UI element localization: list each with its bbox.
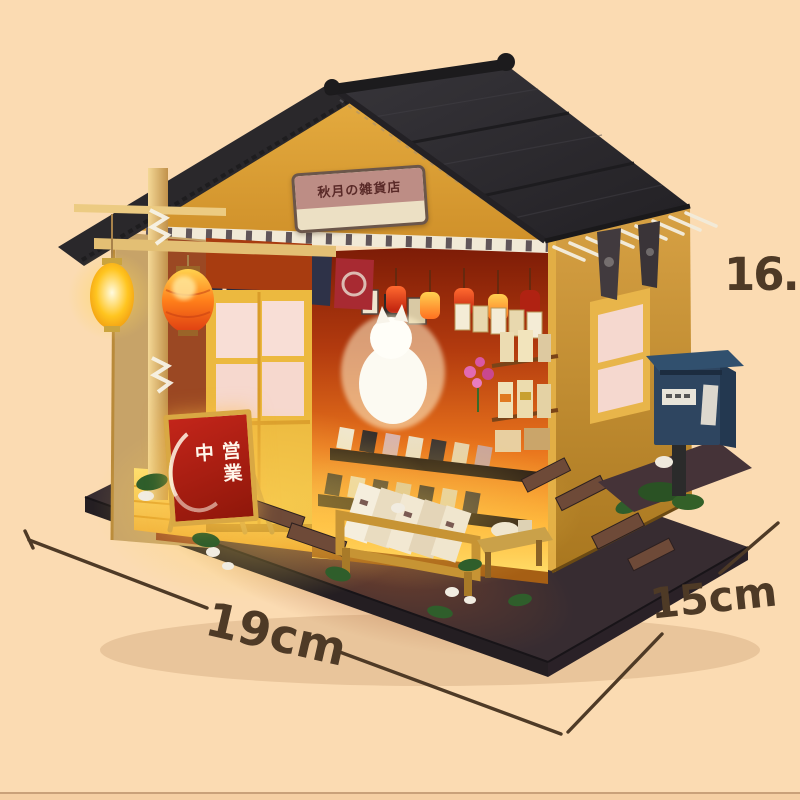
backdrop-table-seam xyxy=(0,792,800,800)
ridge-finial-back xyxy=(497,53,515,71)
depth-dimension-label: 15cm xyxy=(648,570,779,625)
scene-illustration xyxy=(0,0,800,800)
height-dimension-label: 16.5cm xyxy=(724,252,800,297)
gable-sign-text: 秋月の雑貨店 xyxy=(294,168,424,210)
red-noren-panel xyxy=(334,258,374,310)
open-sign-text: 営業中 xyxy=(189,440,246,495)
side-window xyxy=(590,288,650,424)
gable-sign: 秋月の雑貨店 xyxy=(291,164,429,233)
product-photo-miniature-shop: 秋月の雑貨店 営業中 19cm 15cm 16.5cm xyxy=(0,0,800,800)
mailbox-pole xyxy=(672,440,686,496)
jar-shelf xyxy=(492,330,558,452)
open-sign: 営業中 xyxy=(163,409,259,527)
ridge-finial-front xyxy=(324,79,340,95)
